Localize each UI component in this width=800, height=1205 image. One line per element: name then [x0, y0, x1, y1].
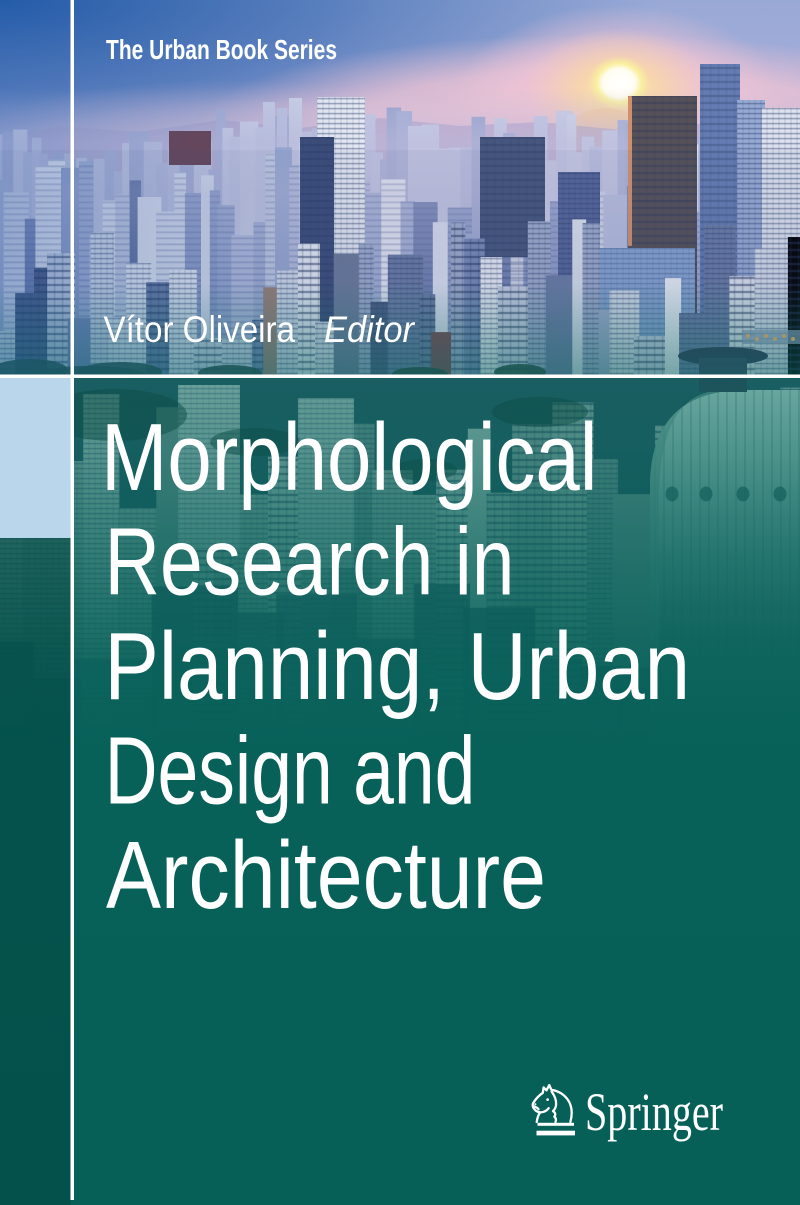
svg-text:Research in: Research in	[105, 509, 515, 616]
svg-text:The Urban Book Series: The Urban Book Series	[106, 34, 337, 65]
svg-text:Springer: Springer	[585, 1082, 723, 1142]
svg-text:Planning, Urban: Planning, Urban	[104, 613, 690, 720]
svg-text:Vítor Oliveira: Vítor Oliveira	[104, 309, 296, 350]
svg-text:Architecture: Architecture	[106, 822, 546, 929]
svg-text:Morphological: Morphological	[101, 404, 598, 511]
svg-text:Design and: Design and	[105, 718, 476, 825]
svg-text:Editor: Editor	[324, 309, 416, 350]
